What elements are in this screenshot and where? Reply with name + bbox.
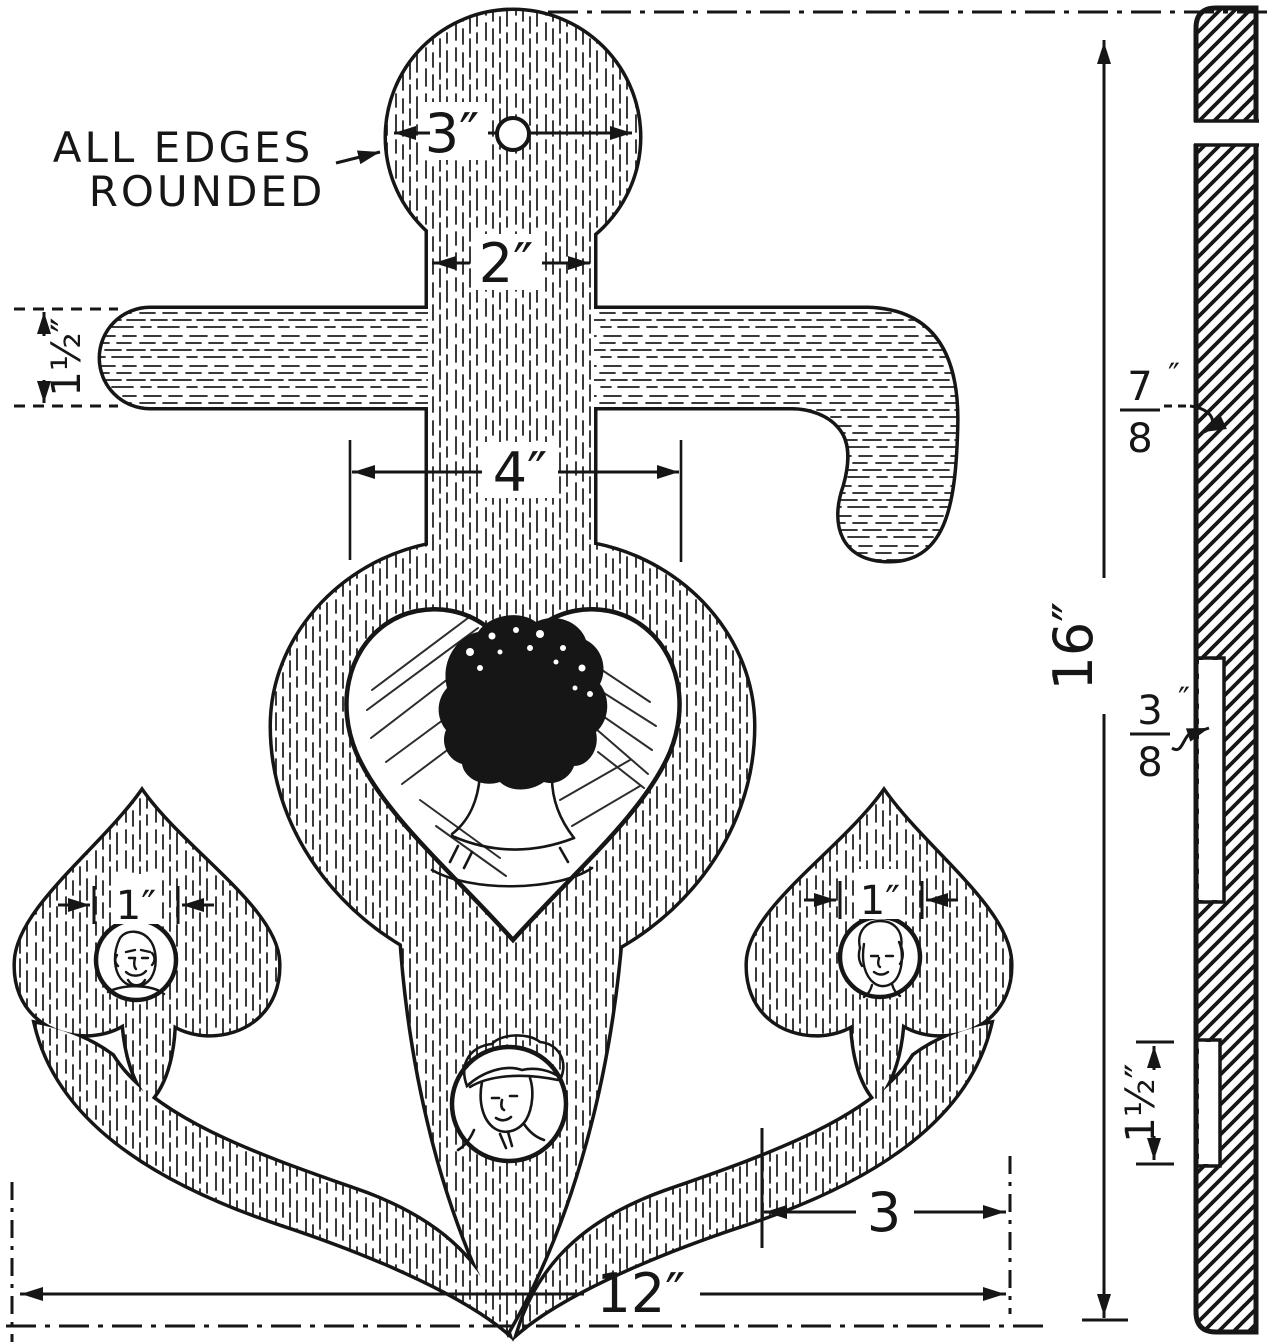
dim-arm-width-label: 1½″: [44, 317, 90, 396]
note-line2: ROUNDED: [89, 167, 326, 216]
dim-left-hole-label: 1″: [116, 883, 156, 929]
dim-body-width-label: 4″: [493, 441, 548, 504]
dim-recess-depth-numerator: 3: [1137, 688, 1162, 734]
dim-right-hole-label: 1″: [860, 878, 900, 924]
dim-thickness-numerator: 7: [1127, 364, 1152, 410]
portrait-man-left: [96, 920, 176, 1000]
dim-overall-height: 16″: [1042, 40, 1105, 1318]
side-view-recess: [1198, 658, 1224, 902]
head-hole: [497, 118, 529, 150]
side-view-notch: [1197, 1040, 1220, 1166]
note-line1: ALL EDGES: [53, 123, 314, 172]
dim-recess-length-label: 1½″: [1118, 1063, 1164, 1142]
dim-overall-height-label: 16″: [1042, 602, 1105, 691]
side-view: [1191, 8, 1261, 1332]
dim-thickness-unit: ″: [1168, 356, 1180, 394]
dim-thickness-denominator: 8: [1127, 416, 1152, 462]
dim-fluke-to-edge-label: 3: [867, 1181, 901, 1244]
portrait-woman-right: [840, 917, 920, 997]
dim-overall-width-label: 12″: [597, 1262, 686, 1325]
dim-recess-depth-denominator: 8: [1137, 740, 1162, 786]
dim-head-diameter-label: 3″: [425, 102, 480, 165]
note-leader-arrow: [336, 152, 380, 163]
dim-recess-depth-unit: ″: [1178, 680, 1190, 718]
dim-shank-width-label: 2″: [479, 232, 534, 295]
note-all-edges-rounded: ALL EDGES ROUNDED: [53, 123, 380, 216]
plan-drawing: ALL EDGES ROUNDED 3″ 2″: [0, 0, 1276, 1344]
dim-recess-length: 1½″: [1118, 1042, 1178, 1164]
side-view-hole-gap: [1191, 121, 1261, 145]
blueprint-canvas: ALL EDGES ROUNDED 3″ 2″: [0, 0, 1276, 1344]
